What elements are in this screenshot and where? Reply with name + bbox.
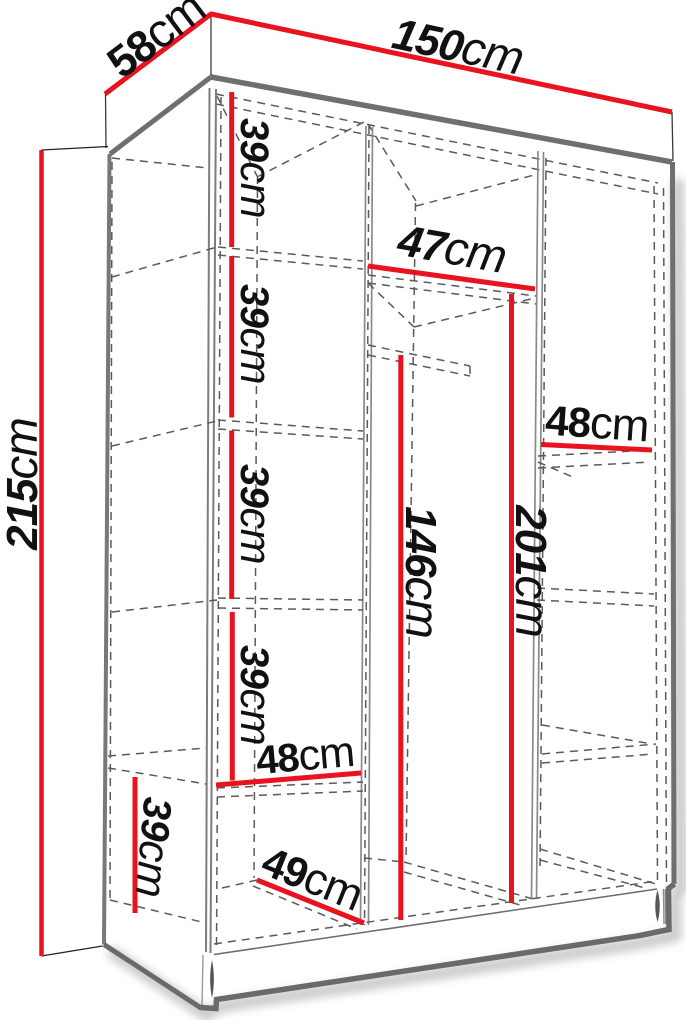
svg-text:39cm: 39cm	[231, 464, 279, 564]
svg-text:49cm: 49cm	[255, 835, 370, 921]
svg-text:146cm: 146cm	[395, 506, 448, 638]
svg-text:39cm: 39cm	[231, 118, 279, 218]
svg-text:48cm: 48cm	[544, 393, 650, 451]
svg-text:215cm: 215cm	[0, 418, 48, 551]
svg-text:39cm: 39cm	[231, 284, 279, 384]
svg-text:39cm: 39cm	[231, 645, 279, 745]
svg-text:150cm: 150cm	[388, 6, 528, 85]
svg-text:201cm: 201cm	[505, 504, 558, 637]
svg-text:58cm: 58cm	[97, 0, 215, 89]
svg-text:39cm: 39cm	[126, 795, 183, 899]
